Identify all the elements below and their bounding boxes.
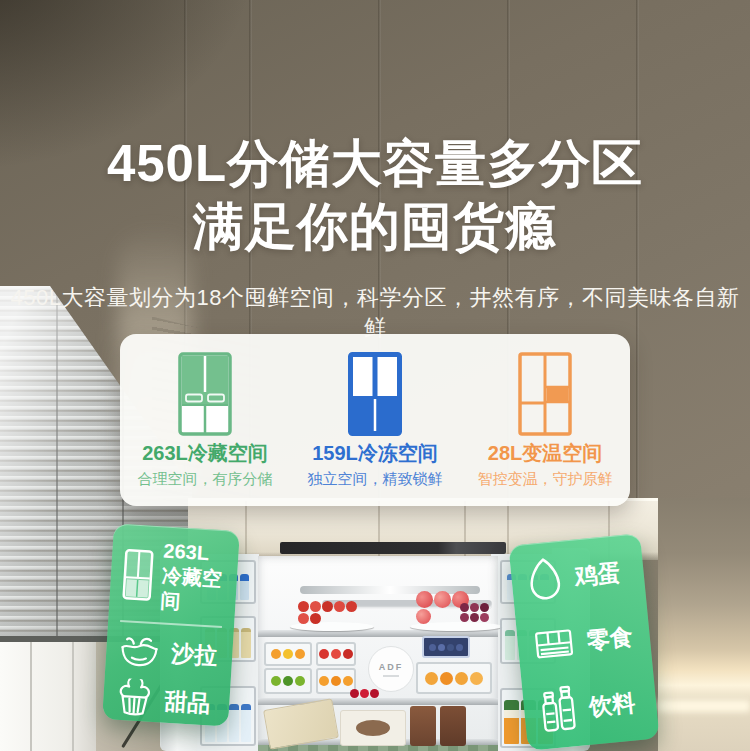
zone-label: 159L冷冻空间 [290, 442, 460, 464]
tag-item-drink: 饮料 [536, 677, 648, 735]
dessert-icon [114, 678, 154, 720]
promo-page: ADF [0, 0, 750, 751]
under-cabinet-light [658, 700, 750, 712]
backsplash-wall [658, 498, 750, 751]
zone-cold-storage: 263L冷藏空间 合理空间，有序分储 [120, 334, 290, 506]
tag-item-label: 零食 [585, 621, 634, 656]
produce-crate [264, 668, 312, 694]
tag-head: 263L 冷藏空间 [121, 536, 229, 617]
produce-crate [264, 642, 312, 666]
zone-label: 263L冷藏空间 [120, 442, 290, 464]
zone-variable-temp: 28L变温空间 智控变温，守护原鲜 [460, 334, 630, 506]
adf-logo-text: ADF [379, 662, 404, 672]
zone-desc: 合理空间，有序分储 [120, 470, 290, 489]
fridge-zone-tag-right: 鸡蛋 零食 [508, 533, 659, 751]
egg-icon [524, 555, 566, 604]
cherries [350, 688, 380, 698]
chocolate-pack-brown [440, 706, 466, 746]
drink-icon [536, 684, 580, 736]
window-mullion [72, 642, 74, 751]
fridge-mini-icon [121, 548, 154, 602]
window-frame [0, 642, 96, 751]
fridge-cold-zone-icon [120, 346, 290, 442]
tag-zone-name: 冷藏空间 [160, 563, 228, 617]
title-line-1: 450L分储大容量多分区 [0, 132, 750, 195]
tag-item-dessert: 甜品 [114, 678, 220, 724]
tag-item-label: 沙拉 [170, 638, 218, 672]
title-line-2: 满足你的囤货瘾 [0, 195, 750, 258]
fridge-zone-tag-left: 263L 冷藏空间 沙拉 甜品 [102, 523, 240, 726]
blueberry-box [422, 636, 470, 658]
interior-led-light [300, 586, 480, 594]
chocolate-pack-brown [410, 706, 436, 746]
apricot-box [416, 662, 492, 694]
window-mullion [30, 642, 32, 751]
strawberries [298, 604, 364, 624]
chocolate-pack-white [340, 710, 406, 746]
tag-item-label: 甜品 [163, 685, 211, 719]
storage-zones-card: 263L冷藏空间 合理空间，有序分储 159L冷冻空间 独立空间，精致锁鲜 [120, 334, 630, 506]
fridge-display-panel [280, 542, 506, 554]
snack-icon [530, 623, 577, 665]
fridge-variable-zone-icon [460, 346, 630, 442]
zone-desc: 独立空间，精致锁鲜 [290, 470, 460, 489]
tag-item-snack: 零食 [530, 617, 641, 665]
zone-freezer: 159L冷冻空间 独立空间，精致锁鲜 [290, 334, 460, 506]
adf-logo-badge: ADF [368, 646, 414, 692]
tomato-box [316, 642, 356, 666]
zone-label: 28L变温空间 [460, 442, 630, 464]
tag-item-label: 鸡蛋 [573, 557, 622, 592]
tag-item-label: 饮料 [588, 687, 637, 722]
fridge-freezer-zone-icon [290, 346, 460, 442]
tag-item-salad: 沙拉 [117, 633, 223, 673]
page-title: 450L分储大容量多分区 满足你的囤货瘾 [0, 132, 750, 258]
tag-divider [120, 620, 222, 628]
grapes [460, 594, 496, 622]
salad-icon [117, 633, 161, 670]
tag-item-egg: 鸡蛋 [524, 548, 636, 604]
zone-desc: 智控变温，守护原鲜 [460, 470, 630, 489]
